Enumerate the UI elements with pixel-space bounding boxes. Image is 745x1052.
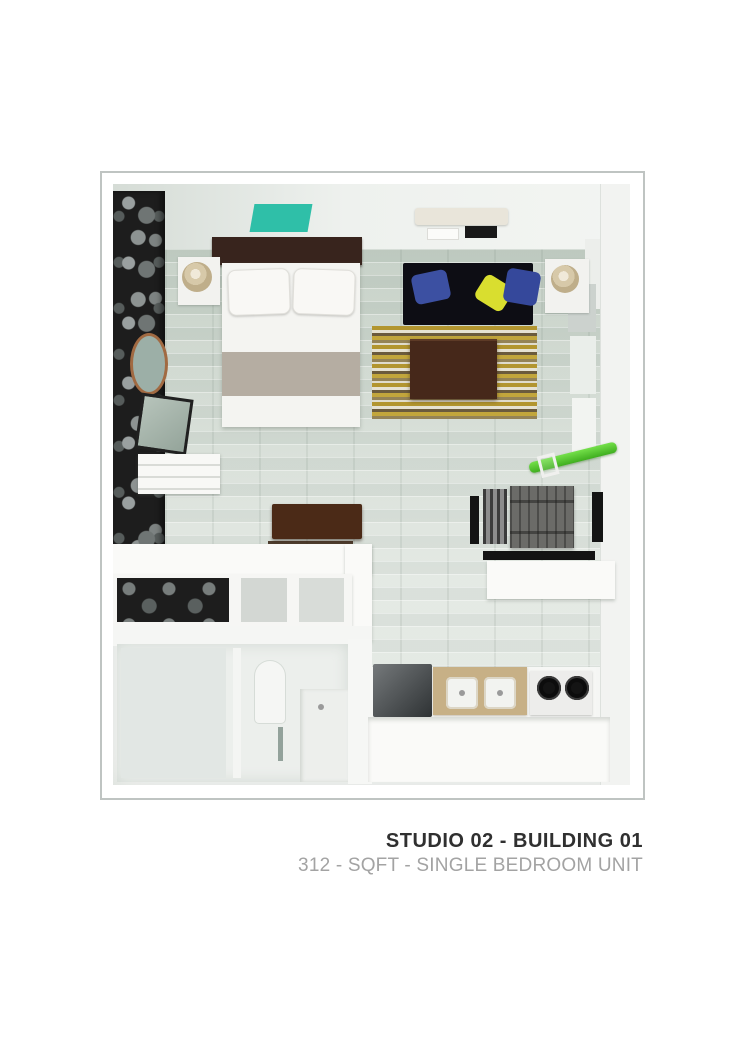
bathroom-wall <box>113 626 372 646</box>
table-lamp <box>182 262 212 292</box>
window-panel <box>570 336 596 394</box>
console-rail <box>483 551 595 560</box>
faucet <box>318 704 324 710</box>
shower-area <box>121 648 226 778</box>
storage-counter <box>113 544 372 574</box>
dining-chair <box>470 496 479 544</box>
right-wall <box>600 184 630 785</box>
dining-table <box>510 486 574 548</box>
bed-runner <box>222 352 360 396</box>
vanity <box>300 689 348 782</box>
cubby <box>299 578 344 622</box>
bed-pillow <box>292 268 356 316</box>
teal-ceiling-panel <box>250 204 313 232</box>
dining-chair <box>592 492 603 542</box>
floor-plan-figure <box>100 171 645 800</box>
page: STUDIO 02 - BUILDING 01 312 - SQFT - SIN… <box>0 0 745 1052</box>
plan-interior <box>113 184 630 785</box>
plan-title: STUDIO 02 - BUILDING 01 <box>298 830 643 853</box>
wall-mirror <box>134 393 193 456</box>
round-mirror <box>130 333 168 395</box>
floating-shelf <box>138 454 220 494</box>
toilet <box>255 661 285 723</box>
headboard <box>212 237 362 265</box>
coffee-table <box>410 339 497 399</box>
skateboard-strap <box>537 452 560 478</box>
window-panel <box>572 398 596 453</box>
bed-pillow <box>227 268 291 316</box>
faucet <box>497 690 503 696</box>
cubby-open-back <box>117 578 229 622</box>
top-wall <box>113 184 630 257</box>
wall-desk <box>272 504 362 539</box>
refrigerator <box>373 664 432 717</box>
floor-drain-line <box>278 727 283 761</box>
wall-switch <box>427 228 459 240</box>
plan-subtitle: 312 - SQFT - SINGLE BEDROOM UNIT <box>298 855 643 876</box>
stove-burner <box>565 676 589 700</box>
dining-bench <box>483 489 507 544</box>
stove-burner <box>537 676 561 700</box>
wall-vent <box>465 226 497 238</box>
table-lamp <box>551 265 579 293</box>
ac-unit <box>415 208 508 225</box>
wall-shelf <box>487 561 615 599</box>
faucet <box>459 690 465 696</box>
throw-pillow-blue <box>502 267 541 306</box>
kitchen-counter <box>368 717 610 782</box>
shower-divider <box>233 648 241 778</box>
cubby <box>241 578 287 622</box>
caption: STUDIO 02 - BUILDING 01 312 - SQFT - SIN… <box>298 830 643 876</box>
